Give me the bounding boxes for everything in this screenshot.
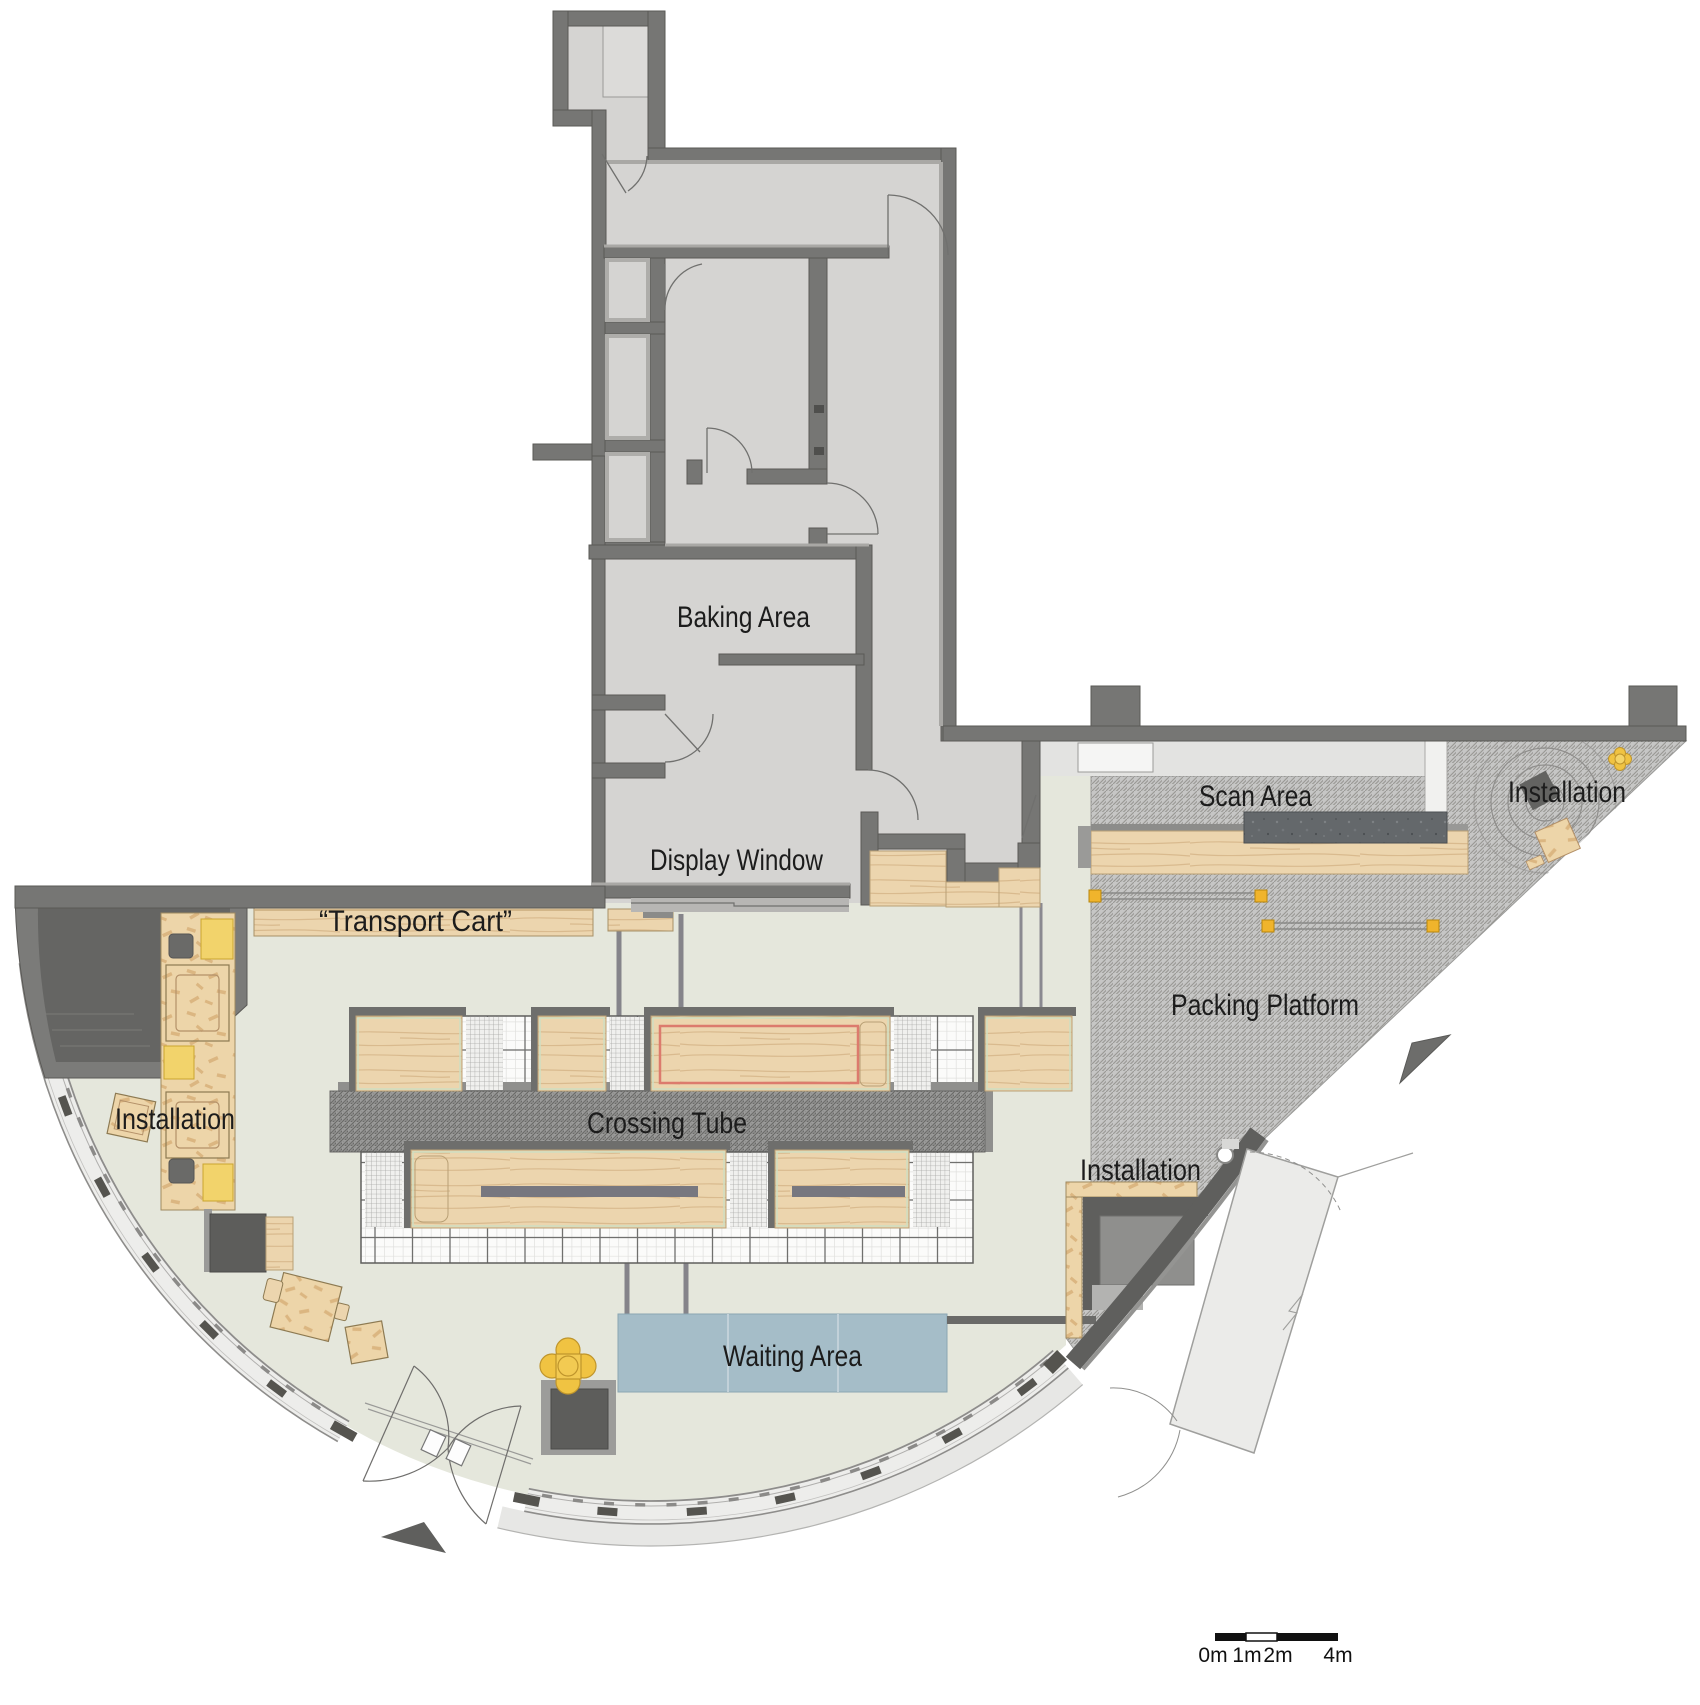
svg-text:Baking Area: Baking Area [677,601,810,634]
svg-text:Crossing Tube: Crossing Tube [587,1107,747,1140]
svg-text:0m: 0m [1198,1644,1227,1667]
svg-text:Display Window: Display Window [650,844,823,877]
svg-text:Waiting Area: Waiting Area [723,1340,862,1373]
svg-text:Packing Platform: Packing Platform [1171,989,1359,1022]
svg-text:Installation: Installation [115,1103,235,1136]
svg-text:“Transport Cart”: “Transport Cart” [319,905,512,938]
svg-text:1m: 1m [1232,1644,1261,1667]
svg-text:Installation: Installation [1508,776,1626,809]
svg-text:Scan Area: Scan Area [1199,780,1312,813]
svg-text:2m: 2m [1263,1644,1292,1667]
svg-text:Installation: Installation [1080,1154,1201,1187]
svg-text:4m: 4m [1323,1644,1352,1667]
